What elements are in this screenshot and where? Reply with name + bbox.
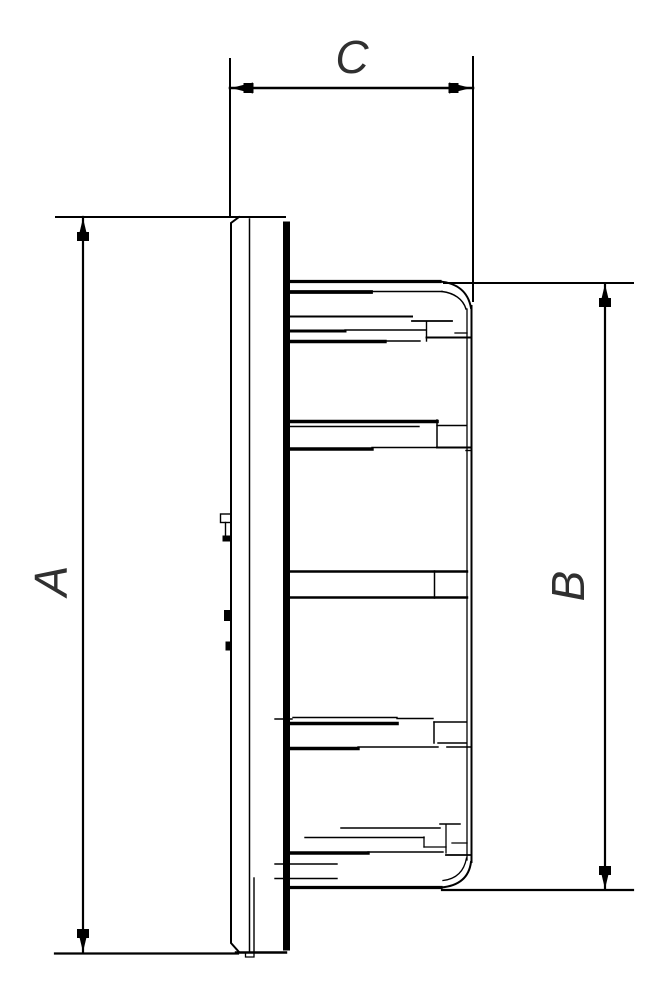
body-bottom-inner-corner [443, 858, 467, 881]
mounting-clip-top [221, 514, 232, 523]
arrowhead-c-left-base [244, 83, 254, 93]
body-top-right-corner [440, 282, 471, 309]
body-bottom-right-corner [441, 862, 471, 888]
technical-drawing-side-view: C A B [0, 0, 662, 1000]
dimension-a: A [25, 217, 238, 954]
dimension-b-label: B [542, 571, 594, 602]
arrowhead-a-top-base [77, 232, 89, 241]
drawing-sheet: C A B [0, 0, 662, 1000]
arrowhead-b-top-base [599, 298, 611, 307]
flange-front-edge [231, 217, 239, 952]
dimension-c-label: C [335, 31, 369, 83]
rib-group-4 [275, 718, 472, 749]
mounting-clip-mid [224, 610, 231, 621]
body-rim-inner-corner [442, 292, 466, 310]
flange-plate [221, 217, 291, 957]
arrowhead-c-right-base [449, 83, 459, 93]
mounting-clip-low [226, 642, 232, 651]
rib-group-bottom [275, 824, 472, 879]
rib-group-2 [290, 420, 472, 451]
arrowhead-b-bottom-base [599, 866, 611, 875]
mounting-clip-foot [223, 536, 232, 542]
dimension-c: C [230, 31, 473, 301]
drawing-root: C A B [25, 31, 633, 957]
rib-group-top [288, 317, 470, 342]
arrowhead-a-bottom-base [77, 929, 89, 938]
dimension-a-label: A [25, 566, 77, 600]
flange-bottom-notch [246, 954, 255, 958]
rib-group-middle [288, 571, 467, 598]
body-outline [290, 282, 472, 888]
